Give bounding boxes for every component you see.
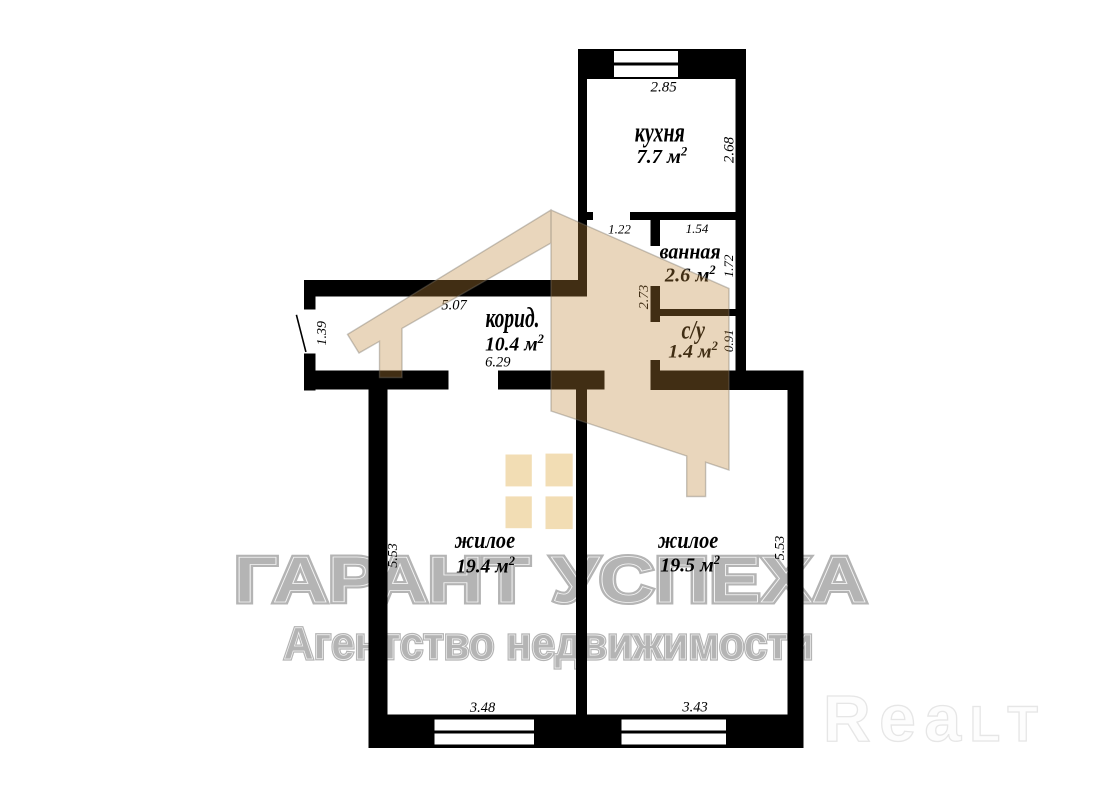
- svg-text:19.5 м: 19.5 м: [660, 554, 713, 576]
- svg-text:1.54: 1.54: [686, 221, 709, 236]
- svg-text:2: 2: [708, 263, 715, 277]
- svg-text:6.29: 6.29: [485, 355, 511, 371]
- svg-text:1.72: 1.72: [721, 254, 736, 277]
- svg-text:2: 2: [537, 332, 544, 346]
- svg-text:2: 2: [680, 144, 687, 158]
- svg-text:1.22: 1.22: [608, 222, 631, 237]
- svg-text:2: 2: [508, 554, 515, 568]
- svg-text:5.53: 5.53: [773, 536, 788, 561]
- svg-text:жилое: жилое: [657, 528, 718, 554]
- svg-text:2.68: 2.68: [722, 136, 738, 163]
- svg-text:кухня: кухня: [635, 117, 685, 148]
- svg-text:корид.: корид.: [486, 302, 540, 334]
- svg-text:жилое: жилое: [454, 528, 515, 554]
- svg-text:Агентство недвижимости: Агентство недвижимости: [284, 618, 814, 669]
- svg-text:3.43: 3.43: [681, 700, 707, 716]
- svg-text:ванная: ванная: [660, 238, 721, 263]
- svg-text:10.4 м: 10.4 м: [485, 333, 537, 355]
- svg-text:5.53: 5.53: [386, 543, 401, 568]
- svg-text:3.48: 3.48: [469, 700, 496, 716]
- svg-text:1.39: 1.39: [315, 321, 330, 346]
- svg-text:19.4 м: 19.4 м: [456, 555, 509, 577]
- svg-text:2: 2: [713, 553, 720, 567]
- svg-text:7.7 м: 7.7 м: [637, 146, 682, 168]
- svg-text:2.85: 2.85: [650, 80, 677, 96]
